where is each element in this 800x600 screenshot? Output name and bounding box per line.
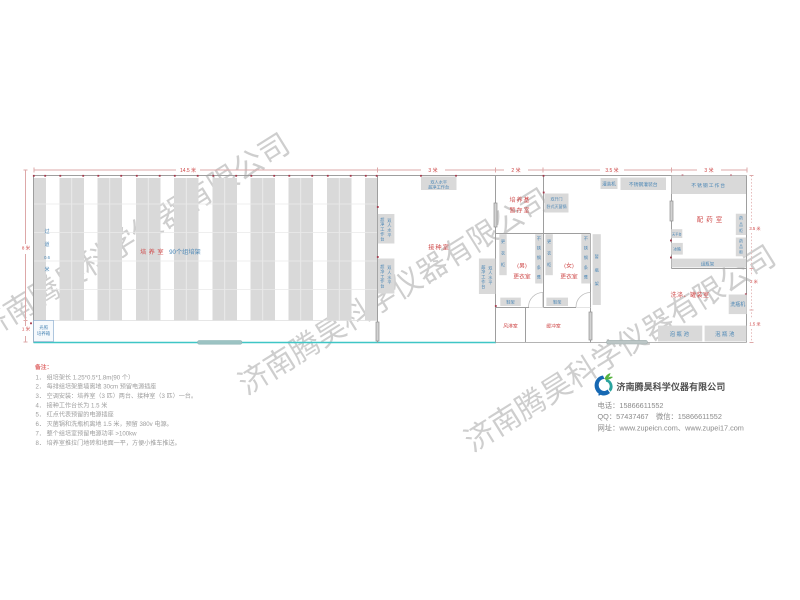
svg-text:2 米: 2 米 <box>511 167 520 174</box>
svg-text:暂: 暂 <box>595 253 599 260</box>
svg-text:冰箱: 冰箱 <box>673 247 681 252</box>
svg-text:道: 道 <box>44 241 49 248</box>
svg-text:台: 台 <box>481 283 485 290</box>
svg-text:QQ：57437467 微信：15866611552: QQ：57437467 微信：15866611552 <box>598 412 722 421</box>
svg-text:电话：15866611552: 电话：15866611552 <box>598 401 664 410</box>
svg-text:柜: 柜 <box>501 261 505 268</box>
svg-text:柜: 柜 <box>739 250 743 255</box>
svg-text:药: 药 <box>739 216 743 221</box>
svg-text:5． 红点代表预留的电源插座: 5． 红点代表预留的电源插座 <box>36 411 114 419</box>
svg-text:(女): (女) <box>564 262 574 270</box>
svg-text:风淋室: 风淋室 <box>503 323 518 330</box>
svg-text:台: 台 <box>380 283 384 290</box>
svg-text:4． 接种工作台长为 1.5 米: 4． 接种工作台长为 1.5 米 <box>36 402 108 410</box>
svg-text:台: 台 <box>380 235 384 242</box>
svg-text:卧式灭菌锅: 卧式灭菌锅 <box>547 203 567 209</box>
svg-text:1． 组培架长 1.25*0.5*1.8m(90 个）: 1． 组培架长 1.25*0.5*1.8m(90 个） <box>36 373 135 381</box>
svg-text:3 米: 3 米 <box>704 167 713 174</box>
svg-text:7． 整个组培室预留电源功率 >100kw: 7． 整个组培室预留电源功率 >100kw <box>36 430 138 438</box>
svg-text:瓶: 瓶 <box>595 267 599 274</box>
svg-text:超净工作台: 超净工作台 <box>428 184 449 191</box>
svg-text:接种室: 接种室 <box>428 244 450 252</box>
svg-text:灌装机: 灌装机 <box>602 181 616 188</box>
svg-text:洗涤、罐装室: 洗涤、罐装室 <box>670 291 709 299</box>
svg-text:8 米: 8 米 <box>22 245 31 252</box>
svg-text:光照: 光照 <box>39 324 48 331</box>
svg-text:柜: 柜 <box>739 228 743 233</box>
svg-text:暂存室: 暂存室 <box>509 207 530 215</box>
svg-text:3.5 米: 3.5 米 <box>605 167 618 174</box>
svg-text:鞋架: 鞋架 <box>506 299 514 306</box>
svg-text:钢: 钢 <box>584 254 588 261</box>
svg-text:泡瓶池: 泡瓶池 <box>715 330 736 338</box>
svg-text:3.5 米: 3.5 米 <box>749 225 761 232</box>
svg-text:柜: 柜 <box>547 261 551 268</box>
svg-text:不锈钢灌装台: 不锈钢灌装台 <box>629 181 658 188</box>
svg-text:更衣室: 更衣室 <box>560 273 578 281</box>
svg-text:不锈钢工作台: 不锈钢工作台 <box>691 182 726 189</box>
svg-text:双开门: 双开门 <box>551 196 563 202</box>
svg-text:2． 每排组培架靠墙离地 30cm 预留电源插座: 2． 每排组培架靠墙离地 30cm 预留电源插座 <box>36 382 157 390</box>
svg-text:培养基: 培养基 <box>509 196 530 204</box>
svg-text:2 米: 2 米 <box>750 278 758 285</box>
svg-text:品: 品 <box>739 222 743 227</box>
svg-text:天平台: 天平台 <box>672 231 682 236</box>
svg-text:3 米: 3 米 <box>428 167 437 174</box>
svg-text:组瓶架: 组瓶架 <box>701 260 715 267</box>
svg-text:网址：www.zupeicn.com、www.zupei17: 网址：www.zupeicn.com、www.zupei17.com <box>598 424 744 433</box>
svg-text:备注：: 备注： <box>34 363 52 371</box>
svg-text:济南腾昊科学仪器有限公司: 济南腾昊科学仪器有限公司 <box>617 381 726 392</box>
svg-text:米: 米 <box>44 266 49 273</box>
svg-text:钢: 钢 <box>537 254 541 261</box>
svg-text:培养箱: 培养箱 <box>37 330 51 337</box>
svg-text:过: 过 <box>44 228 49 235</box>
svg-text:缓冲室: 缓冲室 <box>546 323 561 330</box>
svg-text:鞋架: 鞋架 <box>553 299 561 306</box>
svg-text:更衣室: 更衣室 <box>513 273 531 281</box>
svg-text:6． 灭菌锅和洗瓶机离地 1.5 米，预留 380v 电源。: 6． 灭菌锅和洗瓶机离地 1.5 米，预留 380v 电源。 <box>36 420 173 428</box>
svg-text:泡瓶池: 泡瓶池 <box>670 330 691 338</box>
svg-text:药: 药 <box>739 239 743 244</box>
svg-text:配药室: 配药室 <box>697 215 726 224</box>
svg-text:1.5 米: 1.5 米 <box>749 321 761 328</box>
svg-text:品: 品 <box>739 244 743 249</box>
svg-text:洗瓶机: 洗瓶机 <box>730 301 745 308</box>
svg-text:0.6: 0.6 <box>44 255 50 260</box>
svg-text:1 米: 1 米 <box>22 326 31 333</box>
svg-text:14.5 米: 14.5 米 <box>180 167 196 174</box>
svg-text:8． 培养室推拉门地砖和地面一平，方便小推车推送。: 8． 培养室推拉门地砖和地面一平，方便小推车推送。 <box>36 439 181 447</box>
svg-text:培养室90个组培架: 培养室90个组培架 <box>140 248 201 256</box>
svg-text:3． 空调安装：培养室（3 匹）两台、接种室（3 匹）一台。: 3． 空调安装：培养室（3 匹）两台、接种室（3 匹）一台。 <box>36 392 198 400</box>
svg-text:(男): (男) <box>517 263 527 270</box>
